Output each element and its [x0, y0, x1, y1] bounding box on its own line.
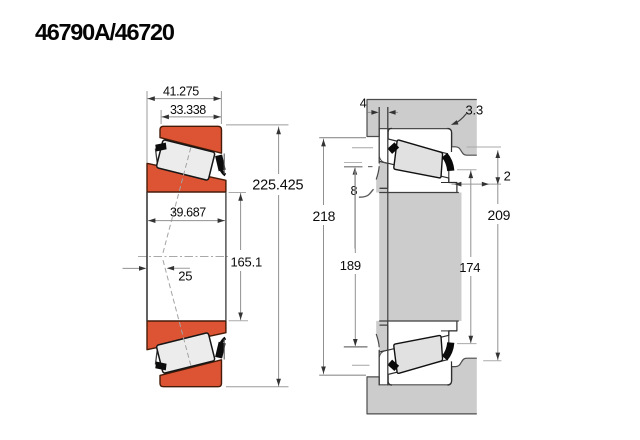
svg-text:189: 189: [340, 258, 361, 273]
svg-text:39.687: 39.687: [170, 206, 206, 220]
svg-text:4: 4: [360, 96, 367, 110]
svg-text:25: 25: [178, 268, 192, 283]
svg-text:209: 209: [488, 207, 511, 223]
svg-text:225.425: 225.425: [252, 178, 303, 194]
svg-text:2: 2: [504, 169, 511, 184]
svg-text:41.275: 41.275: [163, 85, 199, 99]
svg-text:8: 8: [351, 184, 358, 198]
svg-text:33.338: 33.338: [170, 103, 206, 117]
svg-text:165.1: 165.1: [231, 254, 263, 269]
svg-text:3.3: 3.3: [466, 103, 483, 118]
svg-text:218: 218: [313, 208, 336, 224]
svg-text:174: 174: [459, 260, 480, 275]
